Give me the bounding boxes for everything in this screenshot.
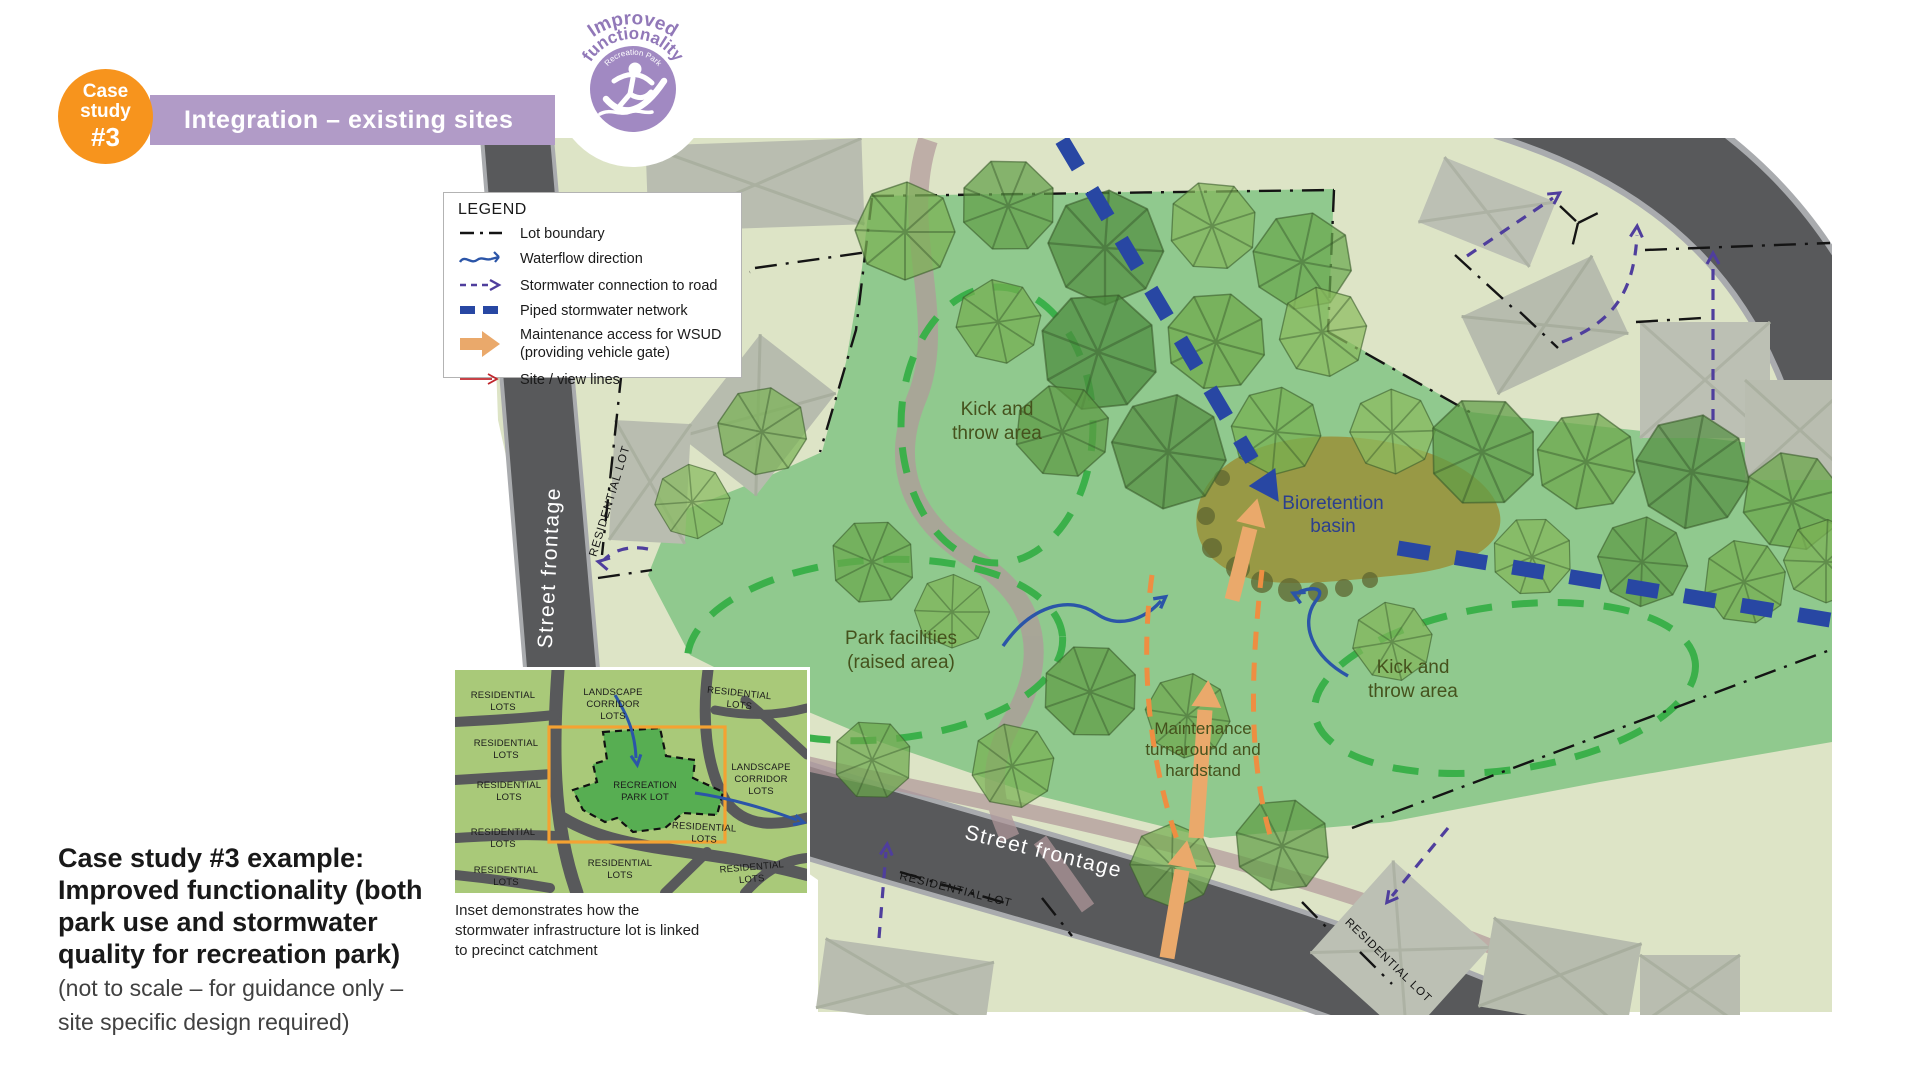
- improved-functionality-stamp: Improved functionality Recreation Park: [552, 8, 714, 170]
- inset-caption: Inset demonstrates how the stormwater in…: [455, 901, 745, 961]
- legend-item-stormwater-connection: Stormwater connection to road: [458, 277, 731, 297]
- inset-label: PARK LOT: [621, 792, 669, 803]
- inset-label: RESIDENTIAL: [588, 858, 653, 869]
- legend-item-maintenance-access: Maintenance access for WSUD (providing v…: [458, 326, 731, 366]
- inset-label: LOTS: [607, 870, 633, 881]
- inset-label: LOTS: [490, 839, 516, 850]
- inset-label: LOTS: [739, 873, 765, 886]
- inset-label: RESIDENTIAL: [474, 738, 539, 749]
- inset-label: RESIDENTIAL: [474, 865, 539, 876]
- inset-label: LOTS: [490, 702, 516, 713]
- legend-item-piped-network: Piped stormwater network: [458, 302, 731, 321]
- page: { "header": { "badge": {"line1": "Case",…: [0, 0, 1920, 1080]
- svg-text:throw area: throw area: [952, 423, 1042, 444]
- legend-item-waterflow: Waterflow direction: [458, 250, 731, 272]
- stormwater-connection-icon: [458, 277, 520, 297]
- svg-text:basin: basin: [1310, 516, 1355, 537]
- inset-label: LOTS: [496, 792, 522, 803]
- kick-throw-2-label: Kick and: [1377, 657, 1450, 678]
- svg-text:turnaround and: turnaround and: [1145, 740, 1260, 759]
- inset-label: CORRIDOR: [586, 699, 639, 710]
- inset-label: RESIDENTIAL: [477, 780, 542, 791]
- inset-label: LOTS: [600, 711, 626, 722]
- park-facilities-label: Park facilities: [845, 628, 957, 649]
- legend: LEGEND Lot boundary Waterflow direction …: [443, 192, 742, 378]
- legend-title: LEGEND: [458, 201, 731, 219]
- case-study-badge: Case study #3: [58, 69, 153, 164]
- title-banner: Integration – existing sites: [150, 95, 555, 145]
- inset-label: LOTS: [691, 833, 717, 845]
- figure-title: Case study #3 example: Improved function…: [58, 842, 423, 1038]
- kick-throw-1-label: Kick and: [961, 399, 1034, 420]
- legend-item-lot-boundary: Lot boundary: [458, 225, 731, 245]
- piped-network-icon: [458, 302, 520, 321]
- svg-text:throw area: throw area: [1368, 681, 1458, 702]
- inset-label: RECREATION: [613, 780, 677, 791]
- banner-title: Integration – existing sites: [184, 106, 513, 135]
- maintenance-access-icon: [458, 326, 520, 366]
- svg-text:hardstand: hardstand: [1165, 761, 1241, 780]
- inset-label: LANDSCAPE: [583, 687, 642, 698]
- inset-label: LOTS: [493, 750, 519, 761]
- inset-label: RESIDENTIAL: [471, 690, 536, 701]
- svg-text:(raised area): (raised area): [847, 652, 955, 673]
- site-view-lines-icon: [458, 371, 520, 391]
- inset-label: LOTS: [493, 877, 519, 888]
- bioretention-label: Bioretention: [1282, 493, 1383, 514]
- inset-label: RESIDENTIAL: [471, 827, 536, 838]
- precinct-inset-map: RESIDENTIALLOTSRESIDENTIALLOTSRESIDENTIA…: [455, 670, 807, 893]
- legend-item-site-view-lines: Site / view lines: [458, 371, 731, 391]
- waterflow-icon: [458, 250, 520, 272]
- maintenance-label: Maintenance: [1154, 719, 1251, 738]
- inset-label: LANDSCAPE: [731, 762, 790, 773]
- inset-label: CORRIDOR: [734, 774, 787, 785]
- lot-boundary-icon: [458, 225, 520, 245]
- inset-label: LOTS: [748, 786, 774, 797]
